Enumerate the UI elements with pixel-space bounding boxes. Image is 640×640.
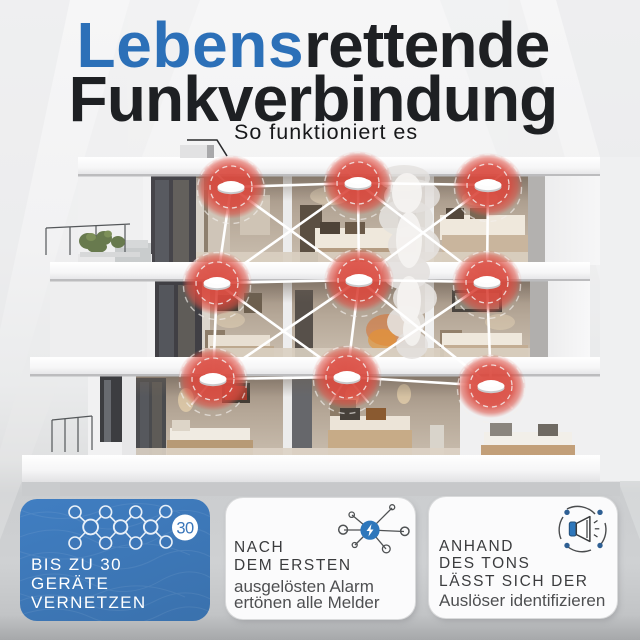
- svg-text:30: 30: [176, 520, 194, 538]
